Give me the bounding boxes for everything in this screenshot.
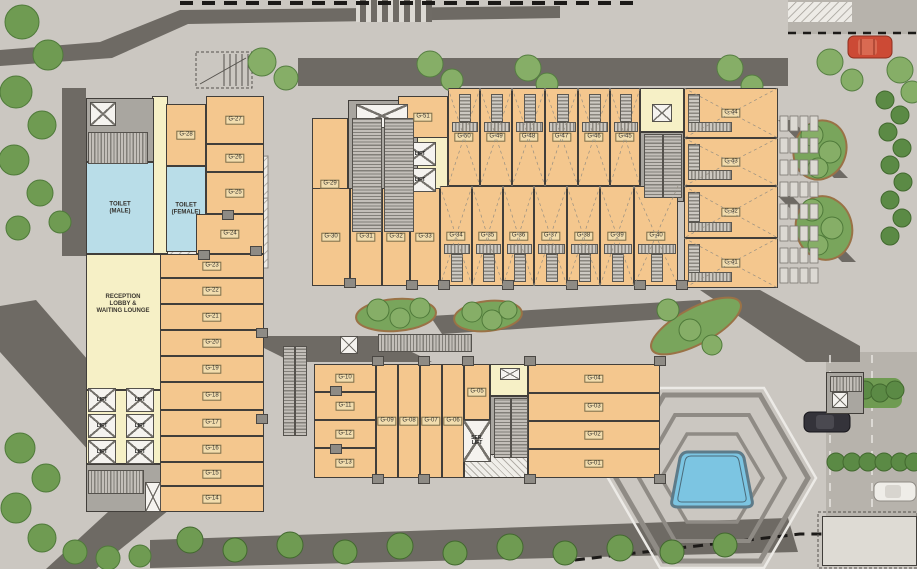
room-label: G-50 — [454, 133, 473, 142]
unit-stair — [688, 222, 732, 232]
unit-stair — [516, 122, 543, 132]
lift-label: SER. LIFT — [464, 421, 490, 461]
column — [676, 280, 688, 290]
room-label: G-03 — [584, 403, 603, 412]
room-label: G-10 — [335, 374, 354, 383]
unit-stair — [459, 94, 471, 122]
unit-stair — [589, 94, 601, 122]
room-label: G-45 — [615, 133, 634, 142]
unit-stair — [444, 244, 470, 254]
room-g-15: G-15 — [160, 462, 264, 486]
room-g-09: G-09 — [376, 364, 398, 478]
room-label: G-37 — [541, 232, 560, 241]
room-label: G-46 — [584, 133, 603, 142]
room-g-16: G-16 — [160, 436, 264, 462]
unit-stair — [612, 254, 624, 282]
unit-stair — [524, 94, 536, 122]
unit-stair — [491, 94, 503, 122]
staircase — [283, 346, 295, 436]
room-g-10: G-10 — [314, 364, 376, 392]
column — [462, 356, 474, 366]
staircase — [494, 398, 511, 458]
room-label: G-49 — [486, 133, 505, 142]
unit-stair — [688, 244, 700, 274]
room-g-06: G-06 — [442, 364, 464, 478]
room-g-27: G-27 — [206, 96, 264, 144]
room-toilet-male-: TOILET (MALE) — [86, 162, 154, 254]
unit-stair — [484, 122, 510, 132]
room-g-22: G-22 — [160, 278, 264, 304]
room-label: G-12 — [335, 430, 354, 439]
unit-stair — [688, 170, 732, 180]
staircase — [295, 346, 307, 436]
column — [256, 414, 268, 424]
room-label: TOILET (FEMALE) — [170, 202, 203, 215]
room-label: G-39 — [607, 232, 626, 241]
room-g-25: G-25 — [206, 172, 264, 214]
room-g-12: G-12 — [314, 420, 376, 448]
unit-stair — [451, 254, 463, 282]
lift-label: LIFT — [127, 441, 153, 463]
unit-stair — [514, 254, 526, 282]
room-label: G-09 — [377, 417, 396, 426]
lift-box — [652, 104, 672, 122]
room-g-13: G-13 — [314, 448, 376, 478]
room-label: G-27 — [225, 116, 244, 125]
unit-stair — [452, 122, 478, 132]
room-g-23: G-23 — [160, 254, 264, 278]
room-label: G-22 — [202, 287, 221, 296]
room-label: G-48 — [519, 133, 538, 142]
room-label: G-16 — [202, 445, 221, 454]
lift-box — [500, 368, 520, 380]
column — [330, 386, 342, 396]
unit-stair — [546, 254, 558, 282]
room-label: G-47 — [552, 133, 571, 142]
room-label: G-21 — [202, 313, 221, 322]
column — [372, 356, 384, 366]
lift-0: LIFT — [88, 388, 116, 412]
unit-stair — [549, 122, 576, 132]
buildings-layer: RECEPTION LOBBY & WAITING LOUNGE TOILET … — [0, 0, 917, 569]
lift-8: SER. LIFT — [463, 420, 491, 462]
column — [198, 250, 210, 260]
room-label: G-26 — [225, 154, 244, 163]
room-label: G-25 — [225, 189, 244, 198]
staircase — [384, 118, 414, 232]
lift-2: LIFT — [88, 440, 116, 464]
staircase — [352, 118, 382, 232]
room-g-11: G-11 — [314, 392, 376, 420]
room-label: G-51 — [413, 113, 432, 122]
room-g-33: G-33 — [410, 188, 440, 286]
lift-label: LIFT — [127, 415, 153, 437]
unit-stair — [688, 94, 700, 124]
unit-stair — [688, 192, 700, 222]
lift-label: LIFT — [89, 389, 115, 411]
unit-stair — [476, 244, 501, 254]
room-label: G-01 — [584, 459, 603, 468]
unit-stair — [604, 244, 632, 254]
column — [344, 278, 356, 288]
column — [566, 280, 578, 290]
room-g-19: G-19 — [160, 356, 264, 382]
room-g-14: G-14 — [160, 486, 264, 512]
unit-stair — [651, 254, 663, 282]
room-label: G-04 — [584, 374, 603, 383]
unit-stair — [614, 122, 638, 132]
room-label: G-32 — [386, 233, 405, 242]
room-label: G-24 — [220, 230, 239, 239]
room-label: G-17 — [202, 419, 221, 428]
room-label: G-38 — [574, 232, 593, 241]
unit-stair — [557, 94, 569, 122]
column — [330, 444, 342, 454]
unit-stair — [571, 244, 598, 254]
unit-stair — [688, 272, 732, 282]
lift-box — [340, 336, 358, 354]
room-label: G-08 — [399, 417, 418, 426]
lift-4: LIFT — [126, 414, 154, 438]
column — [222, 210, 234, 220]
unit-stair — [688, 122, 732, 132]
room-g-28: G-28 — [166, 104, 206, 166]
column — [406, 280, 418, 290]
unit-stair — [507, 244, 532, 254]
room-label: G-29 — [320, 180, 339, 189]
column — [634, 280, 646, 290]
room-corridor — [86, 254, 162, 390]
room-g-03: G-03 — [528, 393, 660, 421]
staircase — [88, 132, 148, 164]
unit-stair — [483, 254, 495, 282]
room-label: G-42 — [721, 208, 740, 217]
room-label: G-20 — [202, 339, 221, 348]
room-plain — [822, 516, 917, 566]
lift-box — [90, 102, 116, 126]
room-label: G-05 — [467, 388, 486, 397]
lift-label: LIFT — [127, 389, 153, 411]
lift-3: LIFT — [126, 388, 154, 412]
room-label: G-07 — [421, 417, 440, 426]
room-g-07: G-07 — [420, 364, 442, 478]
room-g-18: G-18 — [160, 382, 264, 410]
room-label: G-19 — [202, 365, 221, 374]
room-label: G-06 — [443, 417, 462, 426]
staircase — [511, 398, 528, 458]
unit-stair — [638, 244, 676, 254]
lift-box — [145, 482, 161, 512]
unit-stair — [620, 94, 632, 122]
room-label: G-18 — [202, 392, 221, 401]
room-g-02: G-02 — [528, 421, 660, 449]
room-label: G-34 — [446, 232, 465, 241]
room-label: G-11 — [336, 402, 355, 411]
room-label: G-43 — [721, 158, 740, 167]
room-g-01: G-01 — [528, 449, 660, 478]
room-g-26: G-26 — [206, 144, 264, 172]
column — [418, 356, 430, 366]
floor-plan-canvas: RECEPTION LOBBY & WAITING LOUNGE TOILET … — [0, 0, 917, 569]
column — [654, 474, 666, 484]
room-label: TOILET (MALE) — [107, 201, 132, 214]
room-g-08: G-08 — [398, 364, 420, 478]
room-label: G-31 — [356, 233, 375, 242]
staircase — [663, 134, 682, 198]
column — [438, 280, 450, 290]
room-g-17: G-17 — [160, 410, 264, 436]
unit-stair — [579, 254, 591, 282]
lift-label: LIFT — [89, 415, 115, 437]
room-label: G-35 — [478, 232, 497, 241]
room-g-30: G-30 — [312, 188, 350, 286]
room-g-05: G-05 — [464, 364, 490, 420]
room-g-21: G-21 — [160, 304, 264, 330]
room-label: G-44 — [721, 109, 740, 118]
room-g-20: G-20 — [160, 330, 264, 356]
room-label: G-36 — [509, 232, 528, 241]
staircase — [644, 134, 663, 198]
reception-lobby-label: RECEPTION LOBBY & WAITING LOUNGE — [86, 294, 160, 316]
lift-label: LIFT — [89, 441, 115, 463]
room-label: G-33 — [415, 233, 434, 242]
column — [418, 474, 430, 484]
room-label: G-14 — [202, 495, 221, 504]
room-label: G-23 — [202, 262, 221, 271]
room-label: G-30 — [321, 233, 340, 242]
column — [524, 356, 536, 366]
staircase — [378, 334, 472, 352]
unit-stair — [582, 122, 608, 132]
column — [654, 356, 666, 366]
unit-stair — [538, 244, 565, 254]
room-label: G-02 — [584, 431, 603, 440]
lift-5: LIFT — [126, 440, 154, 464]
lift-1: LIFT — [88, 414, 116, 438]
room-label: G-15 — [202, 470, 221, 479]
room-label: G-41 — [721, 259, 740, 268]
lift-box — [832, 392, 848, 408]
room-label: G-28 — [176, 131, 195, 140]
column — [250, 246, 262, 256]
room-label: G-13 — [335, 459, 354, 468]
staircase — [88, 470, 144, 494]
column — [372, 474, 384, 484]
room-g-04: G-04 — [528, 364, 660, 393]
column — [256, 328, 268, 338]
staircase — [830, 376, 862, 392]
column — [524, 474, 536, 484]
column — [502, 280, 514, 290]
room-label: G-40 — [646, 232, 665, 241]
